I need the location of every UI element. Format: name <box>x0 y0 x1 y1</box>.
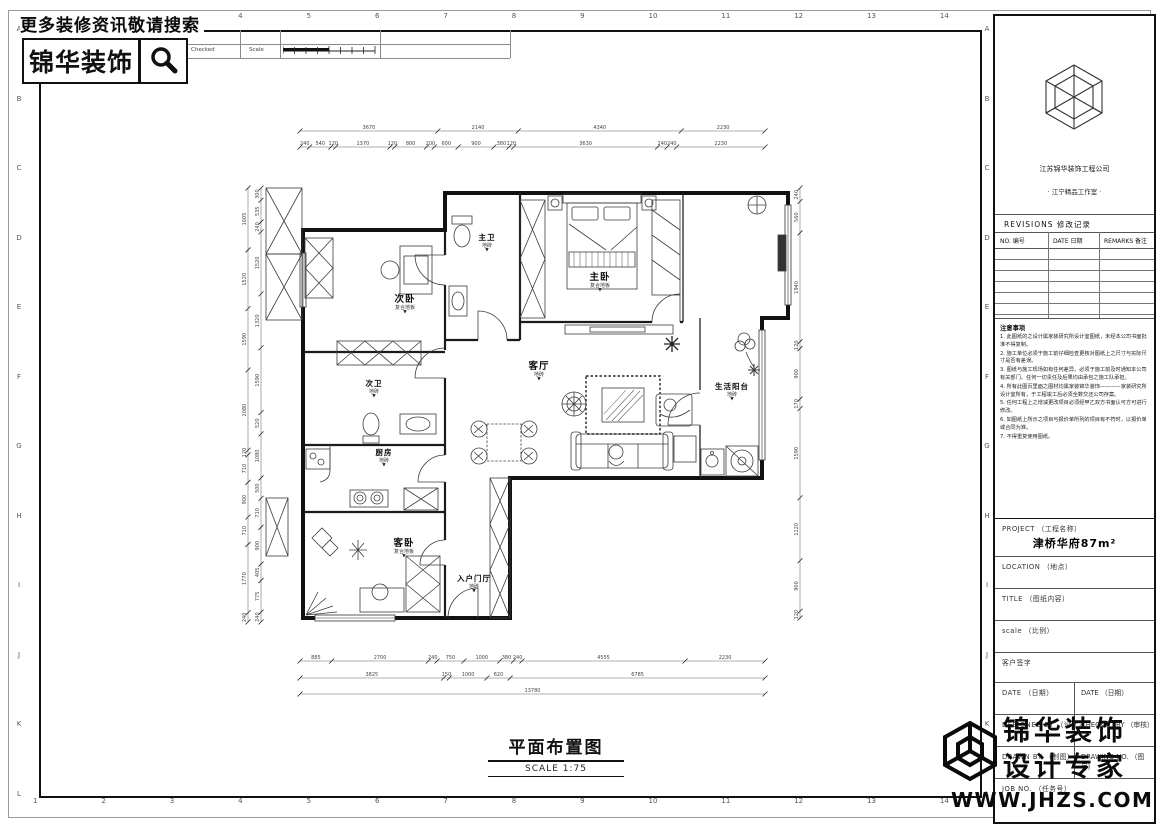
header-table-line <box>280 30 281 58</box>
svg-text:240: 240 <box>667 141 677 147</box>
guest-bedroom-furniture <box>306 528 440 615</box>
client-signature-section: 客户签字 <box>995 652 1154 682</box>
svg-text:240: 240 <box>255 612 261 622</box>
location-label: LOCATION （地点） <box>1002 561 1072 571</box>
revisions-header: REVISIONS 修改记录 <box>995 214 1154 232</box>
scale-bar <box>283 45 378 55</box>
grid-number: 6 <box>375 797 379 805</box>
glass-walls <box>683 193 700 478</box>
grid-number: 7 <box>443 797 447 805</box>
svg-text:1770: 1770 <box>242 572 248 585</box>
grid-number: 3 <box>170 797 174 805</box>
svg-text:1590: 1590 <box>794 447 800 460</box>
grid-number: 7 <box>443 12 447 20</box>
svg-text:240: 240 <box>428 655 438 661</box>
svg-text:1940: 1940 <box>794 281 800 294</box>
dim-top-inner: 2405401201370120800200600900380120363024… <box>298 141 768 150</box>
grid-letter: C <box>981 164 993 172</box>
svg-text:300: 300 <box>255 189 261 199</box>
grid-letter: B <box>981 95 993 103</box>
svg-text:600: 600 <box>442 141 452 147</box>
title-section: TITLE （图纸内容） <box>995 588 1154 620</box>
dim-bottom-total: 13780 <box>298 688 768 697</box>
date-label-right: DATE （日期） <box>1081 687 1128 697</box>
titleblock-logo-section: 江苏锦华装饰工程公司 · 江宁精品工作室 · <box>995 16 1154 214</box>
living-rug <box>586 376 660 434</box>
svg-text:900: 900 <box>794 369 800 379</box>
interior-walls <box>303 193 683 618</box>
company-cube-logo <box>1039 58 1109 136</box>
grid-letter: I <box>981 581 993 589</box>
grid-number: 4 <box>238 797 242 805</box>
dim-bottom-1: 8852700240750100038024045552230 <box>298 655 768 664</box>
svg-text:900: 900 <box>794 581 800 591</box>
second-bedroom-furniture <box>305 238 432 365</box>
dining-set <box>471 421 537 464</box>
note-item: 5. 任何工程上之增减更改项目必须经甲乙双方书面认可方可进行修改。 <box>1000 400 1149 416</box>
svg-text:1590: 1590 <box>242 333 248 346</box>
revisions-divider <box>1048 232 1049 318</box>
svg-text:900: 900 <box>471 141 481 147</box>
svg-text:6785: 6785 <box>631 672 644 678</box>
brand-logo-text: 锦华装饰 <box>29 43 133 79</box>
master-bath-fixtures <box>449 216 472 316</box>
project-label: PROJECT （工程名称） <box>1002 523 1081 533</box>
svg-text:2230: 2230 <box>717 125 730 131</box>
svg-text:2230: 2230 <box>714 141 727 147</box>
svg-text:4340: 4340 <box>593 125 606 131</box>
grid-number: 5 <box>307 12 311 20</box>
grid-letter: G <box>981 442 993 450</box>
svg-text:1320: 1320 <box>255 314 261 327</box>
svg-text:775: 775 <box>255 592 261 602</box>
grid-letter: H <box>13 512 25 520</box>
svg-text:240: 240 <box>794 190 800 200</box>
entry-column <box>490 478 510 618</box>
svg-text:240: 240 <box>658 141 668 147</box>
balcony-fixtures <box>701 333 760 476</box>
svg-text:405: 405 <box>255 568 261 578</box>
svg-text:3670: 3670 <box>363 125 376 131</box>
client-signature-label: 客户签字 <box>1002 657 1031 667</box>
revisions-divider <box>1099 232 1100 318</box>
grid-ruler-right: ABCDEFGHIJKL <box>981 25 993 798</box>
dim-left-inner: 3005352401520132015905201080500710900405… <box>255 186 264 625</box>
magnifier-icon <box>148 45 180 77</box>
grid-number: 2 <box>101 797 105 805</box>
svg-text:240: 240 <box>255 222 261 232</box>
svg-text:2230: 2230 <box>719 655 732 661</box>
svg-text:3630: 3630 <box>579 141 592 147</box>
brand-logo-box: 锦华装饰 <box>22 38 140 84</box>
svg-text:120: 120 <box>794 340 800 350</box>
notes-section: 注意事项 1. 此图纸的之设计属家装研究所设计室图纸，未经本公司书面批准不得复制… <box>995 318 1154 518</box>
header-checked-label: Checked <box>191 47 215 53</box>
svg-text:885: 885 <box>311 655 321 661</box>
studio-name: · 江宁精品工作室 · <box>995 186 1154 196</box>
grid-letter: C <box>13 164 25 172</box>
svg-text:540: 540 <box>315 141 325 147</box>
note-item: 4. 所有此图页里面之图材均属家装锦华装饰————家装研究所设计室所有，于工程竣… <box>1000 384 1149 400</box>
magnifier-box <box>139 38 188 84</box>
grid-letter: E <box>981 303 993 311</box>
note-item: 6. 如图纸上所示之项目与报价单所列的项目有不符时，以报价单或合同为准。 <box>1000 417 1149 433</box>
grid-letter: L <box>13 790 25 798</box>
sofa <box>571 432 673 470</box>
svg-text:2140: 2140 <box>472 125 485 131</box>
svg-text:520: 520 <box>255 418 261 428</box>
grid-number: 6 <box>375 12 379 20</box>
note-item: 2. 施工单位必须于施工前仔细检查更核对图纸上之尺寸与实际尺寸是否有差误。 <box>1000 351 1149 367</box>
svg-text:1605: 1605 <box>242 213 248 226</box>
company-name: 江苏锦华装饰工程公司 <box>995 164 1154 174</box>
grid-letter: I <box>13 581 25 589</box>
svg-text:1520: 1520 <box>242 273 248 286</box>
svg-text:500: 500 <box>255 483 261 493</box>
drawing-title-block: 平面布置图 SCALE 1:75 <box>488 733 624 777</box>
master-wardrobe <box>520 200 680 318</box>
grid-letter: G <box>13 442 25 450</box>
svg-text:1590: 1590 <box>255 374 261 387</box>
dim-bottom-2: 382515010006206785 <box>298 672 768 681</box>
svg-text:710: 710 <box>255 508 261 518</box>
note-item: 7. 不得重复使用图纸。 <box>1000 434 1149 442</box>
rev-col-no: NO. 编号 <box>995 233 1048 248</box>
svg-text:4555: 4555 <box>597 655 610 661</box>
grid-number: 12 <box>794 797 803 805</box>
grid-letter: D <box>13 234 25 242</box>
svg-text:535: 535 <box>255 206 261 216</box>
svg-text:900: 900 <box>255 541 261 551</box>
svg-text:800: 800 <box>406 141 416 147</box>
watermark-line1: 锦华装饰 <box>1003 714 1127 750</box>
master-tv-cabinet <box>565 325 673 334</box>
dim-left-outer: 16051520159020801207109007101770240 <box>242 186 251 625</box>
svg-text:1370: 1370 <box>356 141 369 147</box>
grid-number: 10 <box>649 12 658 20</box>
door-swings <box>415 255 700 618</box>
scale-label: scale （比例） <box>1002 625 1054 635</box>
drawing-sheet: 1234567891011121314 1234567891011121314 … <box>0 0 1158 827</box>
grid-number: 1 <box>33 797 37 805</box>
location-section: LOCATION （地点） <box>995 556 1154 588</box>
watermark-text: 锦华装饰 设计专家 <box>1003 714 1127 786</box>
grid-letter: E <box>13 303 25 311</box>
svg-text:200: 200 <box>426 141 436 147</box>
drawing-title: 平面布置图 <box>488 733 624 762</box>
grid-number: 11 <box>721 12 730 20</box>
svg-text:620: 620 <box>494 672 504 678</box>
svg-text:2700: 2700 <box>374 655 387 661</box>
svg-text:380: 380 <box>497 141 507 147</box>
grid-ruler-left: ABCDEFGHIJKL <box>13 25 25 798</box>
svg-text:560: 560 <box>794 212 800 222</box>
grid-number: 5 <box>307 797 311 805</box>
grid-letter: J <box>13 651 25 659</box>
header-table-line <box>240 30 241 58</box>
watermark-line2: 设计专家 <box>1003 750 1127 786</box>
left-shafts <box>266 188 302 556</box>
outer-walls <box>303 193 788 618</box>
svg-text:13780: 13780 <box>525 688 541 694</box>
armchair <box>656 394 696 462</box>
grid-letter: K <box>13 720 25 728</box>
svg-text:1520: 1520 <box>255 257 261 270</box>
header-table-line <box>510 30 511 58</box>
second-bath-fixtures <box>363 413 436 443</box>
svg-text:1120: 1120 <box>794 523 800 536</box>
project-section: PROJECT （工程名称） 津桥华府87m² <box>995 518 1154 556</box>
round-chair <box>562 392 586 416</box>
bay-area-items <box>748 196 786 271</box>
dim-top-outer: 3670214043402230 <box>298 125 768 134</box>
svg-text:170: 170 <box>794 399 800 409</box>
grid-number: 8 <box>512 12 516 20</box>
svg-text:900: 900 <box>242 495 248 505</box>
windows <box>300 205 791 621</box>
grid-letter: F <box>13 373 25 381</box>
watermark-url: WWW.JHZS.COM <box>951 788 1153 812</box>
grid-number: 13 <box>867 797 876 805</box>
drawing-scale: SCALE 1:75 <box>488 762 624 777</box>
grid-letter: A <box>981 25 993 33</box>
scale-section: scale （比例） <box>995 620 1154 652</box>
svg-text:1000: 1000 <box>475 655 488 661</box>
grid-number: 8 <box>512 797 516 805</box>
revisions-column-headers: NO. 编号 DATE 日期 REMARKS 备注 <box>995 232 1154 248</box>
watermark: 锦华装饰 设计专家 WWW.JHZS.COM <box>941 714 1153 818</box>
living-plant <box>664 336 680 352</box>
svg-text:750: 750 <box>446 655 456 661</box>
grid-letter: B <box>13 95 25 103</box>
floor-plan: 3670214043402230 24054012013701208002006… <box>240 110 832 706</box>
search-banner: 更多装修资讯敬请搜索 <box>20 11 204 38</box>
notes-list: 1. 此图纸的之设计属家装研究所设计室图纸，未经本公司书面批准不得复制。2. 施… <box>1000 334 1149 441</box>
title-block: 江苏锦华装饰工程公司 · 江宁精品工作室 · REVISIONS 修改记录 NO… <box>993 14 1156 824</box>
rev-col-date: DATE 日期 <box>1048 233 1099 248</box>
svg-text:2080: 2080 <box>242 404 248 417</box>
grid-letter: J <box>981 651 993 659</box>
grid-letter: H <box>981 512 993 520</box>
svg-text:380: 380 <box>502 655 512 661</box>
header-table-line <box>380 30 381 58</box>
watermark-cube-icon <box>941 718 999 784</box>
grid-number: 12 <box>794 12 803 20</box>
svg-text:120: 120 <box>794 610 800 620</box>
date-section: DATE （日期） DATE （日期） <box>995 682 1154 714</box>
svg-text:1080: 1080 <box>255 450 261 463</box>
notes-title: 注意事项 <box>1000 323 1149 332</box>
date-label-left: DATE （日期） <box>1002 687 1054 697</box>
grid-letter: F <box>981 373 993 381</box>
title-label: TITLE （图纸内容） <box>1002 593 1069 603</box>
svg-text:710: 710 <box>242 464 248 474</box>
header-scale-label: Scale <box>249 47 264 53</box>
grid-number: 10 <box>649 797 658 805</box>
svg-text:240: 240 <box>300 141 310 147</box>
svg-text:710: 710 <box>242 526 248 536</box>
svg-text:1000: 1000 <box>462 672 475 678</box>
master-bed <box>548 194 656 289</box>
svg-text:240: 240 <box>242 613 248 623</box>
revisions-empty-rows <box>995 248 1154 318</box>
project-name: 津桥华府87m² <box>995 535 1154 551</box>
dim-right-inner: 240560194012090017015901120900120 <box>794 186 803 621</box>
grid-number: 11 <box>721 797 730 805</box>
svg-text:240: 240 <box>513 655 523 661</box>
note-item: 1. 此图纸的之设计属家装研究所设计室图纸，未经本公司书面批准不得复制。 <box>1000 334 1149 350</box>
rev-col-remarks: REMARKS 备注 <box>1099 233 1154 248</box>
note-item: 3. 图纸与施工现场如有任何差异，必须于施工前及时通知本公司有关部门，任何一切责… <box>1000 367 1149 383</box>
grid-number: 14 <box>940 12 949 20</box>
grid-number: 9 <box>580 797 584 805</box>
grid-number: 13 <box>867 12 876 20</box>
grid-number: 9 <box>580 12 584 20</box>
grid-letter: D <box>981 234 993 242</box>
svg-text:3825: 3825 <box>365 672 378 678</box>
grid-number: 4 <box>238 12 242 20</box>
grid-ruler-bottom: 1234567891011121314 <box>33 797 949 805</box>
